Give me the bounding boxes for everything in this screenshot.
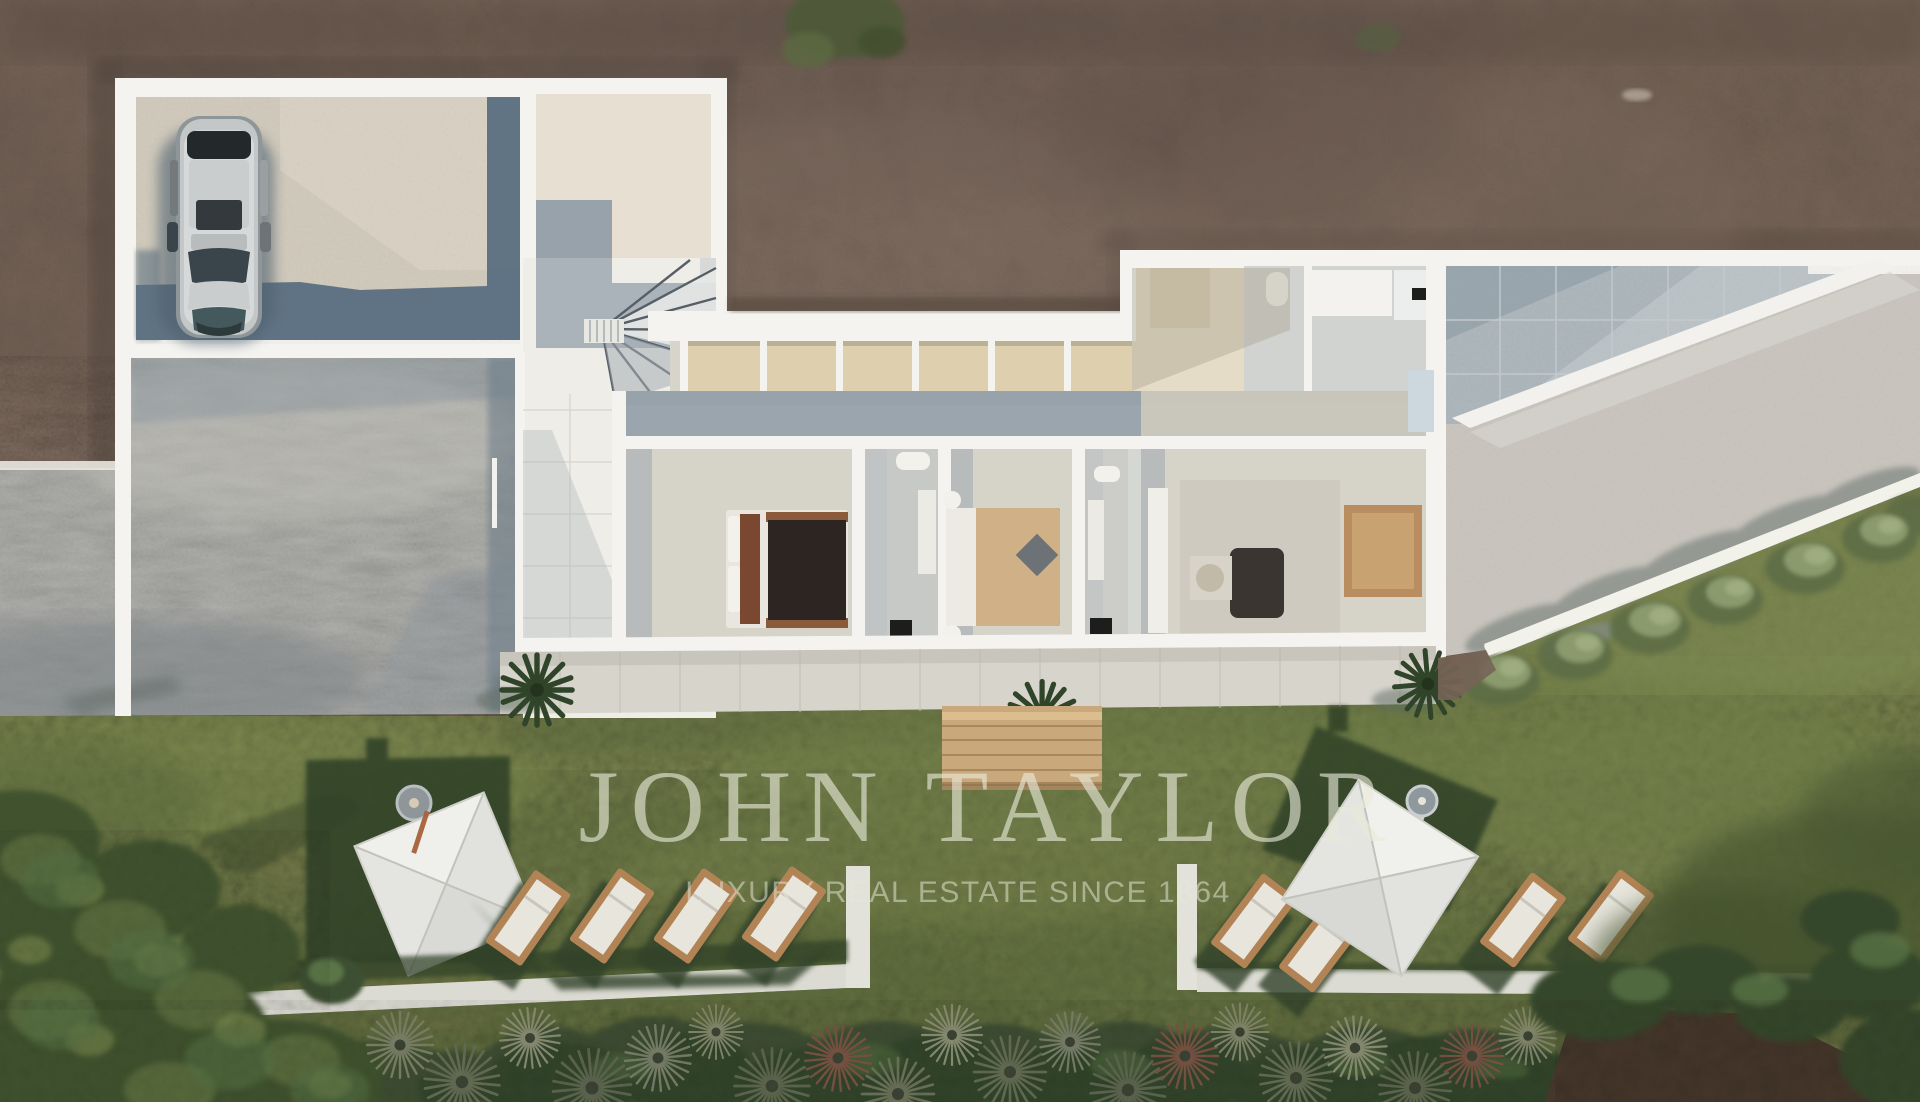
svg-text:JOHN TAYLOR: JOHN TAYLOR (578, 750, 1397, 864)
svg-text:LUXURY REAL ESTATE SINCE 1864: LUXURY REAL ESTATE SINCE 1864 (685, 876, 1230, 909)
